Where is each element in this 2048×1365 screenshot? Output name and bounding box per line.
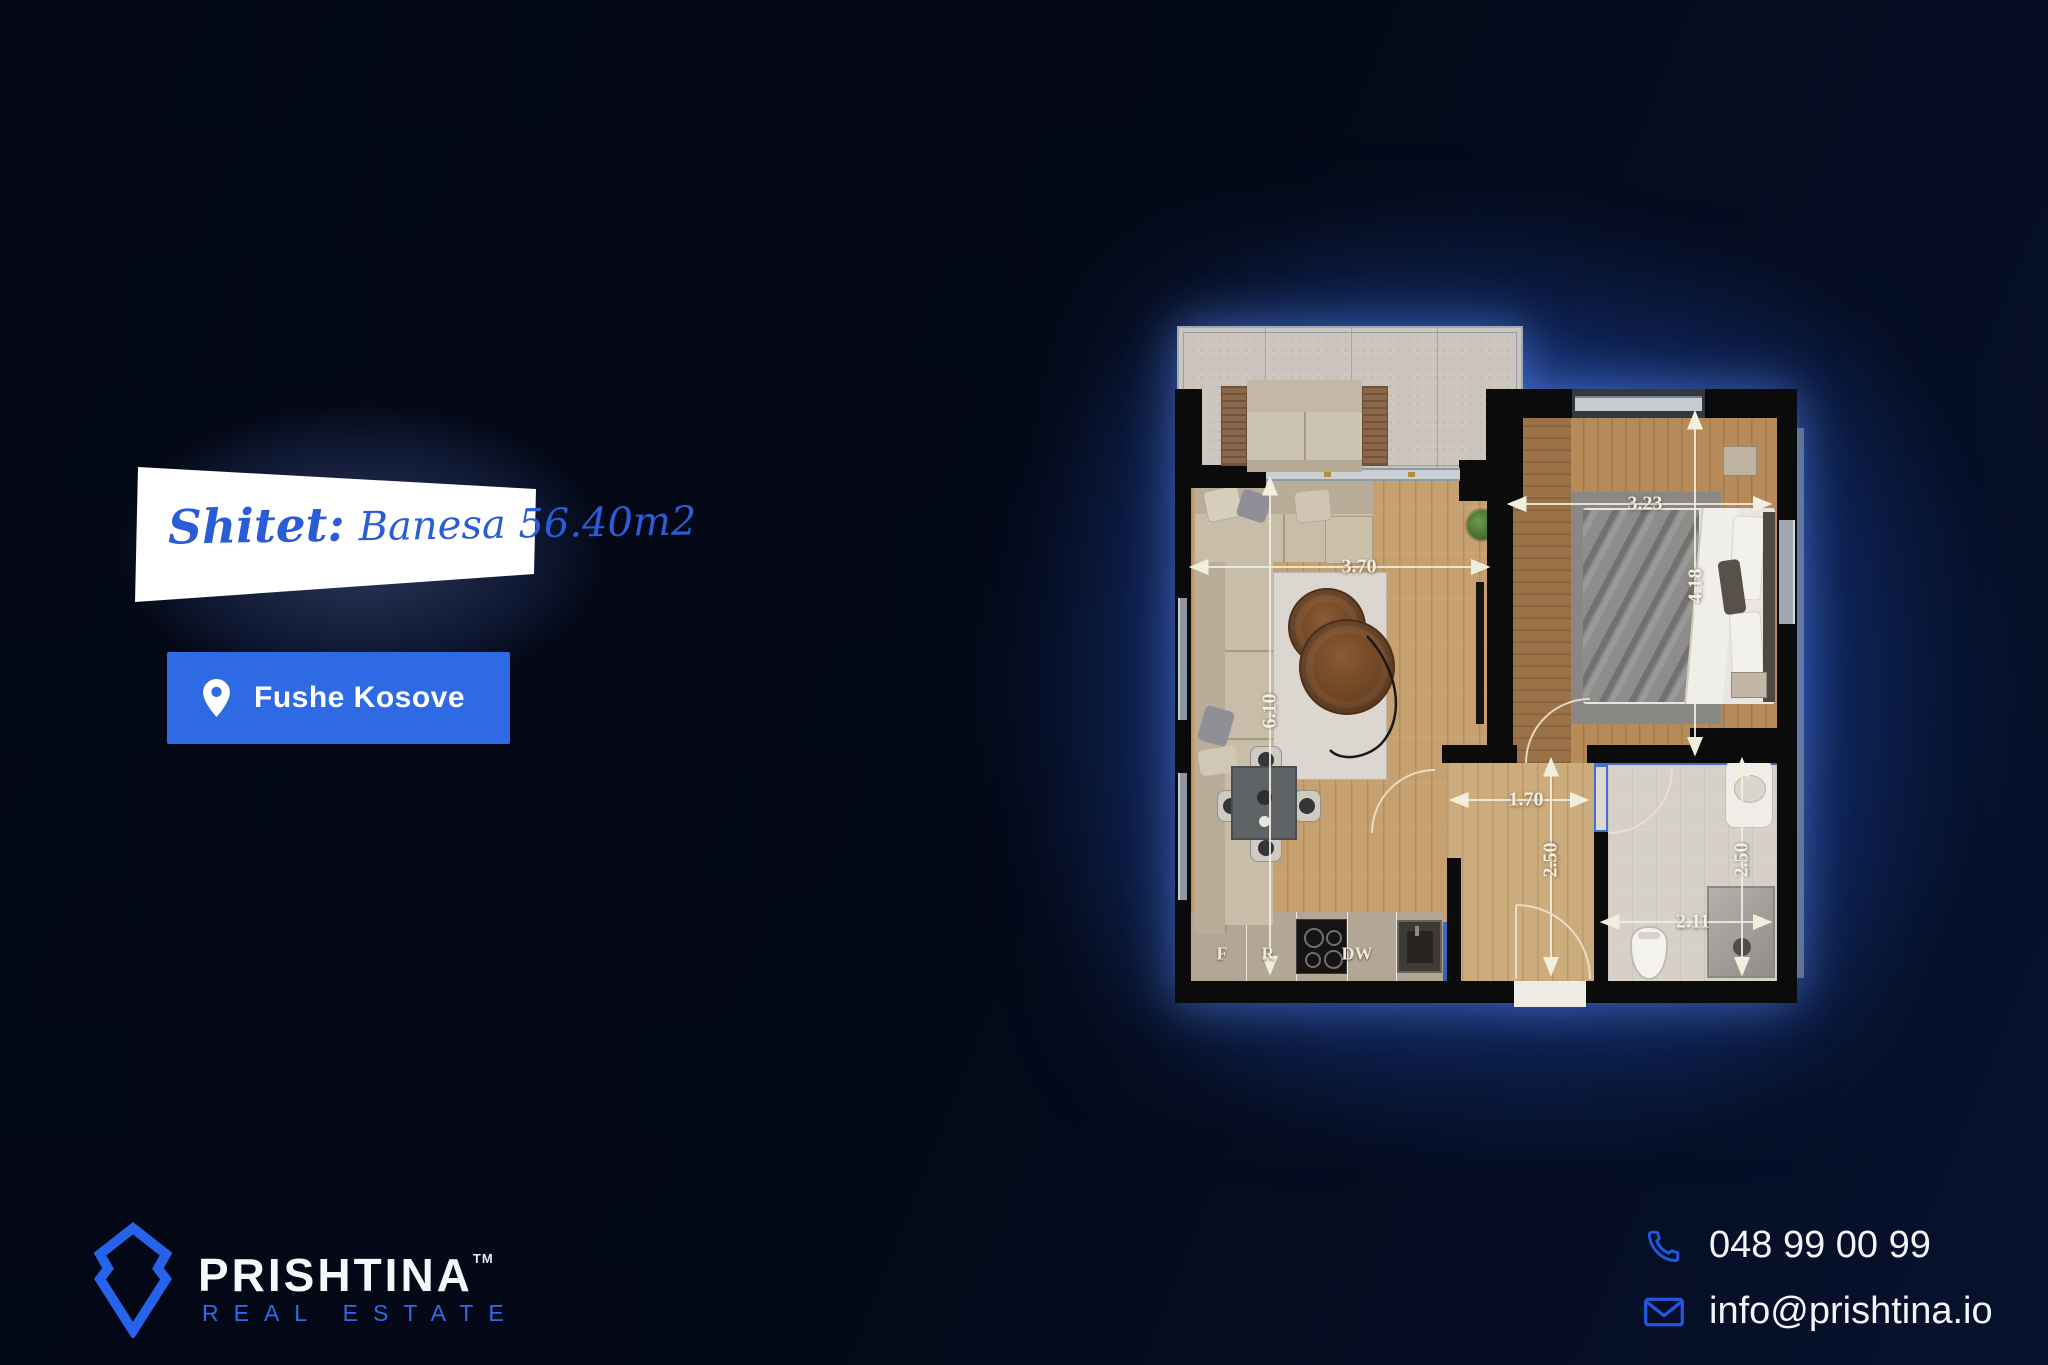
sale-label: Shitet:: [168, 498, 346, 556]
dim-living-height: 6.10: [1259, 694, 1282, 729]
dim-living-width: 3.70: [1342, 556, 1377, 579]
dim-bath-height: 2.50: [1731, 843, 1754, 878]
dim-bedroom-width: 3.23: [1628, 493, 1663, 516]
gem-icon: [88, 1222, 178, 1338]
email-address: info@prishtina.io: [1709, 1290, 1993, 1333]
property-label: Banesa 56.40m2: [358, 498, 696, 550]
location-button[interactable]: Fushe Kosove: [167, 652, 510, 744]
dim-hall-width: 1.70: [1509, 789, 1544, 812]
email-icon: [1643, 1294, 1685, 1330]
dim-bedroom-height: 4.18: [1685, 569, 1708, 604]
phone-row[interactable]: 048 99 00 99: [1645, 1224, 1931, 1267]
location-pin-icon: [203, 679, 230, 717]
dim-hall-height: 2.50: [1540, 843, 1563, 878]
label-range: R: [1262, 944, 1275, 965]
email-row[interactable]: info@prishtina.io: [1643, 1290, 1993, 1333]
floor-plan: 3.70 6.10 3.23 4.18 1.70 2.50 2.11 2.50 …: [1175, 320, 1805, 1010]
sale-banner-text: Shitet:Banesa 56.40m2: [168, 491, 697, 555]
brand-logo: [88, 1222, 178, 1338]
label-fridge: F: [1217, 944, 1228, 965]
label-dishwasher: DW: [1342, 944, 1373, 965]
trademark: TM: [473, 1251, 494, 1266]
brand-tagline: REAL ESTATE: [202, 1300, 519, 1327]
phone-icon: [1645, 1227, 1683, 1265]
location-label: Fushe Kosove: [254, 681, 465, 715]
brand-name: PRISHTINATM: [198, 1248, 494, 1302]
dim-bath-width: 2.11: [1676, 911, 1710, 934]
page: Shitet:Banesa 56.40m2 Fushe Kosove: [0, 0, 2048, 1365]
phone-number: 048 99 00 99: [1709, 1224, 1931, 1267]
